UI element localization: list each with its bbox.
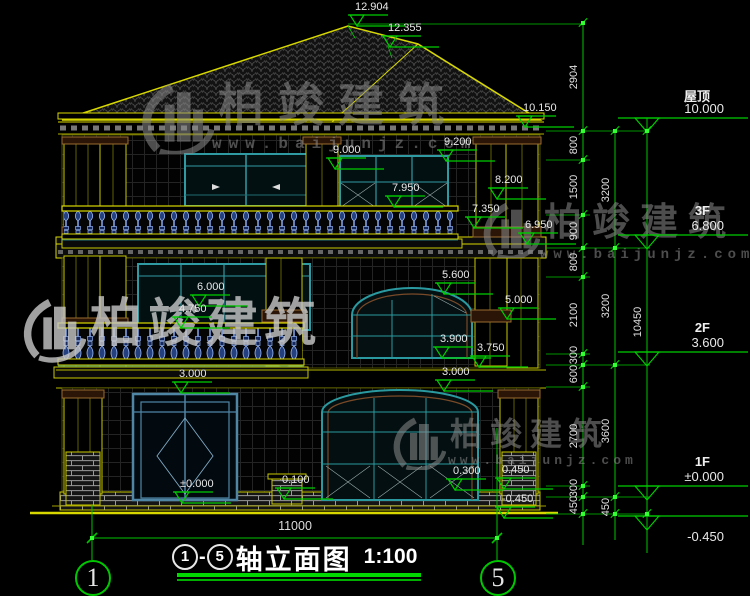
dim-dot [645, 129, 649, 133]
watermark-logo-icon [22, 292, 86, 364]
floor-level-marker: 3F6.800 [618, 234, 750, 251]
drawing-title: 1 - 5 轴立面图 1:100 [172, 541, 417, 573]
watermark-logo-icon [140, 80, 214, 154]
watermark: 柏竣建筑 www.baijunjz.com [392, 414, 446, 470]
overall-width-dimension: 11000 [230, 519, 360, 533]
dimension-value: 450 [598, 485, 614, 529]
axis-bubble-1: 1 [75, 560, 111, 596]
dimension-value: 2100 [566, 293, 582, 337]
dimension-value: 600 [566, 352, 582, 396]
title-scale: 1:100 [364, 545, 418, 569]
elevation-marker: ±0.000 [173, 491, 263, 505]
elevation-marker: 3.000 [172, 381, 262, 395]
dim-dot [645, 512, 649, 516]
dimension-value: 450 [566, 483, 582, 527]
elevation-marker: 6.950 [518, 232, 608, 246]
floor-level-marker: 屋顶10.000 [618, 117, 750, 134]
elevation-marker: 3.750 [470, 355, 560, 369]
dim-dot [613, 363, 617, 367]
elevation-marker: 9.000 [326, 157, 416, 171]
title-axis-dash: - [199, 546, 206, 569]
dimension-value: 2700 [566, 414, 582, 458]
dimension-value: 3200 [598, 284, 614, 328]
elevation-marker: 7.950 [385, 195, 475, 209]
dim-dot [613, 129, 617, 133]
floor-level-marker: -0.450 [618, 515, 750, 532]
floor-level-marker: 2F3.600 [618, 351, 750, 368]
title-underline-thin [177, 579, 421, 581]
window-3f-left [185, 154, 307, 206]
watermark: 柏竣建筑 www.baijunjz.com [140, 80, 214, 154]
floor-level-marker: 1F±0.000 [618, 485, 750, 502]
title-axis-end-bubble: 5 [207, 544, 233, 570]
watermark: 柏竣建筑 [22, 292, 86, 364]
title-text: 轴立面图 [236, 538, 352, 577]
dimension-value: 3200 [598, 168, 614, 212]
title-axis-start-bubble: 1 [172, 544, 198, 570]
dimension-value: 2904 [566, 55, 582, 99]
watermark-logo-icon [392, 414, 446, 470]
balcony-3f [62, 206, 462, 248]
elevation-marker: 0.100 [275, 487, 365, 501]
dimension-value: 800 [566, 240, 582, 284]
dimension-value: 800 [566, 123, 582, 167]
dimension-value: 1500 [566, 165, 582, 209]
cad-elevation-screenshot: 柏竣建筑 www.baijunjz.com 柏竣建筑 www.baijunjz.… [0, 0, 750, 596]
elevation-marker: 0.300 [446, 478, 536, 492]
elevation-marker: 3.000 [435, 379, 525, 393]
dim-dot [581, 21, 585, 25]
elevation-marker: 9.200 [437, 149, 527, 163]
elevation-marker: 8.200 [488, 187, 578, 201]
elevation-marker: 10.150 [516, 115, 606, 129]
elevation-marker: 12.355 [381, 35, 471, 49]
dimension-value: 3600 [598, 409, 614, 453]
dim-dot [613, 246, 617, 250]
title-underline [177, 573, 421, 577]
dimension-value: 10450 [630, 300, 646, 344]
axis-bubble-5: 5 [480, 560, 516, 596]
elevation-marker: 4.750 [172, 316, 262, 330]
